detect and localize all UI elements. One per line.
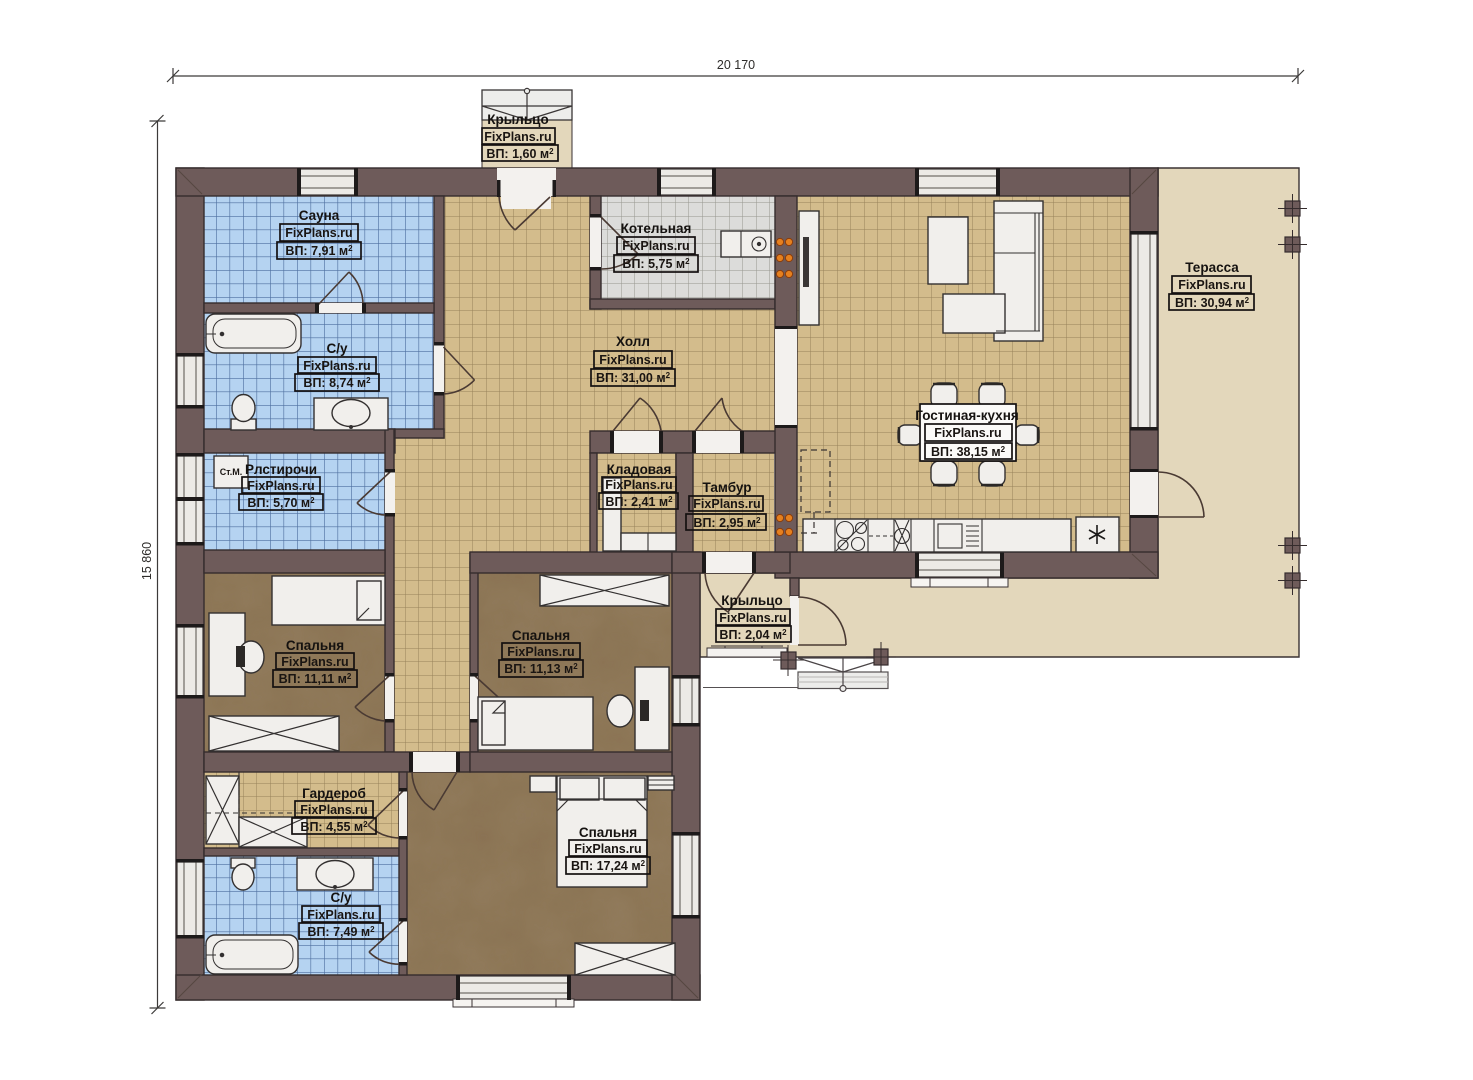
svg-text:Крыльцо: Крыльцо (487, 112, 548, 127)
svg-text:FixPlans.ru: FixPlans.ru (281, 655, 348, 669)
svg-text:ВП: 7,49 м2: ВП: 7,49 м2 (307, 925, 375, 939)
svg-text:20 170: 20 170 (717, 58, 755, 72)
svg-text:Холл: Холл (616, 334, 650, 349)
svg-text:FixPlans.ru: FixPlans.ru (507, 645, 574, 659)
svg-text:Гардероб: Гардероб (302, 786, 366, 801)
svg-text:Ст.М.: Ст.М. (220, 467, 243, 477)
svg-text:FixPlans.ru: FixPlans.ru (719, 611, 786, 625)
svg-text:FixPlans.ru: FixPlans.ru (605, 478, 672, 492)
svg-text:ВП: 38,15 м2: ВП: 38,15 м2 (931, 445, 1006, 459)
svg-text:15 860: 15 860 (140, 542, 154, 580)
svg-text:ВП: 17,24 м2: ВП: 17,24 м2 (571, 859, 646, 873)
svg-text:С/у: С/у (326, 341, 348, 356)
svg-text:ВП: 1,60 м2: ВП: 1,60 м2 (486, 147, 554, 161)
svg-text:FixPlans.ru: FixPlans.ru (303, 359, 370, 373)
svg-text:ВП: 30,94 м2: ВП: 30,94 м2 (1175, 296, 1250, 310)
svg-text:Тамбур: Тамбур (703, 480, 752, 495)
svg-text:FixPlans.ru: FixPlans.ru (307, 908, 374, 922)
svg-text:FixPlans.ru: FixPlans.ru (622, 239, 689, 253)
svg-text:FixPlans.ru: FixPlans.ru (1178, 278, 1245, 292)
svg-text:Спальня: Спальня (286, 638, 344, 653)
svg-text:Крыльцо: Крыльцо (721, 593, 782, 608)
svg-text:FixPlans.ru: FixPlans.ru (934, 426, 1001, 440)
svg-text:ВП: 11,11 м2: ВП: 11,11 м2 (279, 672, 352, 686)
svg-text:ВП: 2,41 м2: ВП: 2,41 м2 (605, 495, 673, 509)
svg-text:Сауна: Сауна (299, 208, 340, 223)
svg-text:ВП: 31,00 м2: ВП: 31,00 м2 (596, 371, 671, 385)
svg-text:FixPlans.ru: FixPlans.ru (484, 130, 551, 144)
svg-text:С/у: С/у (330, 890, 352, 905)
svg-text:ВП: 5,70 м2: ВП: 5,70 м2 (247, 496, 315, 510)
svg-text:ВП: 5,75 м2: ВП: 5,75 м2 (622, 257, 690, 271)
svg-text:Спальня: Спальня (579, 825, 637, 840)
svg-text:Котельная: Котельная (621, 221, 692, 236)
svg-text:ВП: 4,55 м2: ВП: 4,55 м2 (300, 820, 368, 834)
svg-text:Терасса: Терасса (1185, 260, 1239, 275)
svg-text:FixPlans.ru: FixPlans.ru (285, 226, 352, 240)
svg-text:ВП: 8,74 м2: ВП: 8,74 м2 (303, 376, 371, 390)
svg-text:Гостиная-кухня: Гостиная-кухня (915, 408, 1018, 423)
svg-text:FixPlans.ru: FixPlans.ru (574, 842, 641, 856)
svg-text:FixPlans.ru: FixPlans.ru (599, 353, 666, 367)
svg-text:ВП: 7,91 м2: ВП: 7,91 м2 (285, 244, 353, 258)
svg-text:ВП: 11,13 м2: ВП: 11,13 м2 (504, 662, 578, 676)
svg-text:ВП: 2,04 м2: ВП: 2,04 м2 (719, 628, 787, 642)
svg-text:Рлстирочи: Рлстирочи (245, 462, 317, 477)
svg-text:ВП: 2,95 м2: ВП: 2,95 м2 (693, 516, 761, 530)
svg-text:FixPlans.ru: FixPlans.ru (300, 803, 367, 817)
svg-text:Спальня: Спальня (512, 628, 570, 643)
svg-text:FixPlans.ru: FixPlans.ru (247, 479, 314, 493)
svg-text:Кладовая: Кладовая (607, 462, 672, 477)
svg-text:FixPlans.ru: FixPlans.ru (693, 497, 760, 511)
